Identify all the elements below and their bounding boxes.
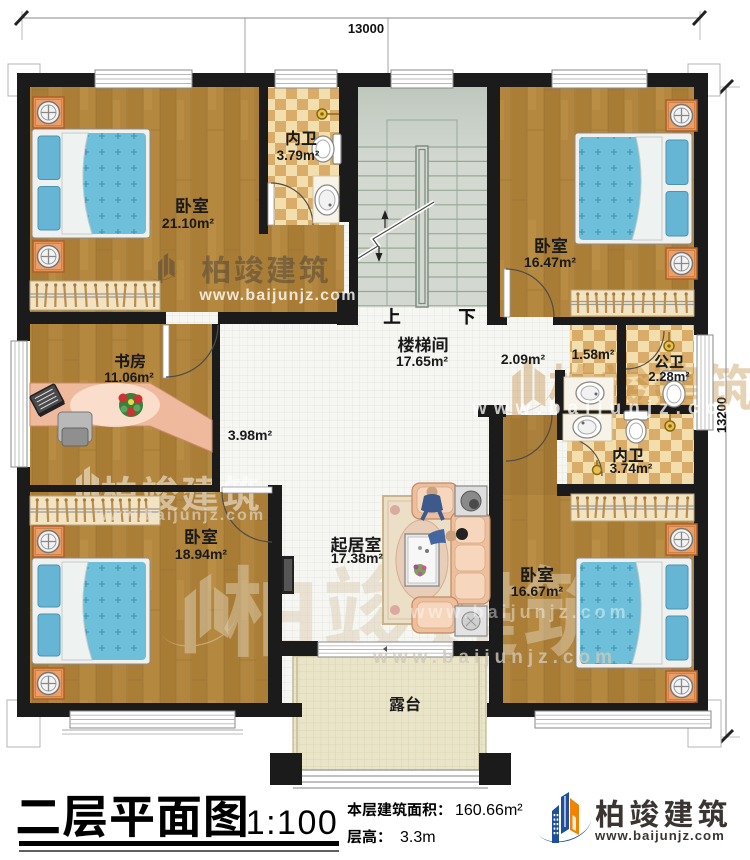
svg-text:2.09m²: 2.09m²: [501, 351, 546, 367]
svg-text:www.baijunjz.com: www.baijunjz.com: [471, 398, 748, 419]
svg-text:www.baijunjz.com: www.baijunjz.com: [372, 647, 617, 668]
svg-text:3.98m²: 3.98m²: [228, 427, 273, 443]
svg-text:www.baijunjz.com: www.baijunjz.com: [198, 287, 356, 304]
svg-text:13000: 13000: [348, 21, 384, 36]
svg-text:www.baijunjz.com: www.baijunjz.com: [594, 828, 725, 843]
svg-text:www.baijunjz.com: www.baijunjz.com: [94, 507, 265, 524]
svg-text:1:100: 1:100: [246, 804, 339, 842]
svg-text:3.79m²: 3.79m²: [277, 148, 320, 163]
svg-text:2.28m²: 2.28m²: [648, 369, 690, 384]
svg-text:21.10m²: 21.10m²: [162, 215, 214, 231]
svg-text:3.3m: 3.3m: [400, 829, 436, 846]
svg-text:1.58m²: 1.58m²: [572, 347, 615, 362]
svg-text:16.67m²: 16.67m²: [511, 583, 563, 599]
svg-text:17.38m²: 17.38m²: [331, 550, 383, 566]
svg-text:160.66m²: 160.66m²: [455, 802, 523, 819]
svg-text:www.baijunjz.com: www.baijunjz.com: [409, 602, 629, 622]
svg-text:11.06m²: 11.06m²: [104, 370, 154, 385]
svg-text:16.47m²: 16.47m²: [524, 254, 576, 270]
svg-text:17.65m²: 17.65m²: [396, 353, 448, 369]
svg-text:18.94m²: 18.94m²: [175, 546, 227, 562]
svg-text:3.74m²: 3.74m²: [610, 461, 653, 476]
